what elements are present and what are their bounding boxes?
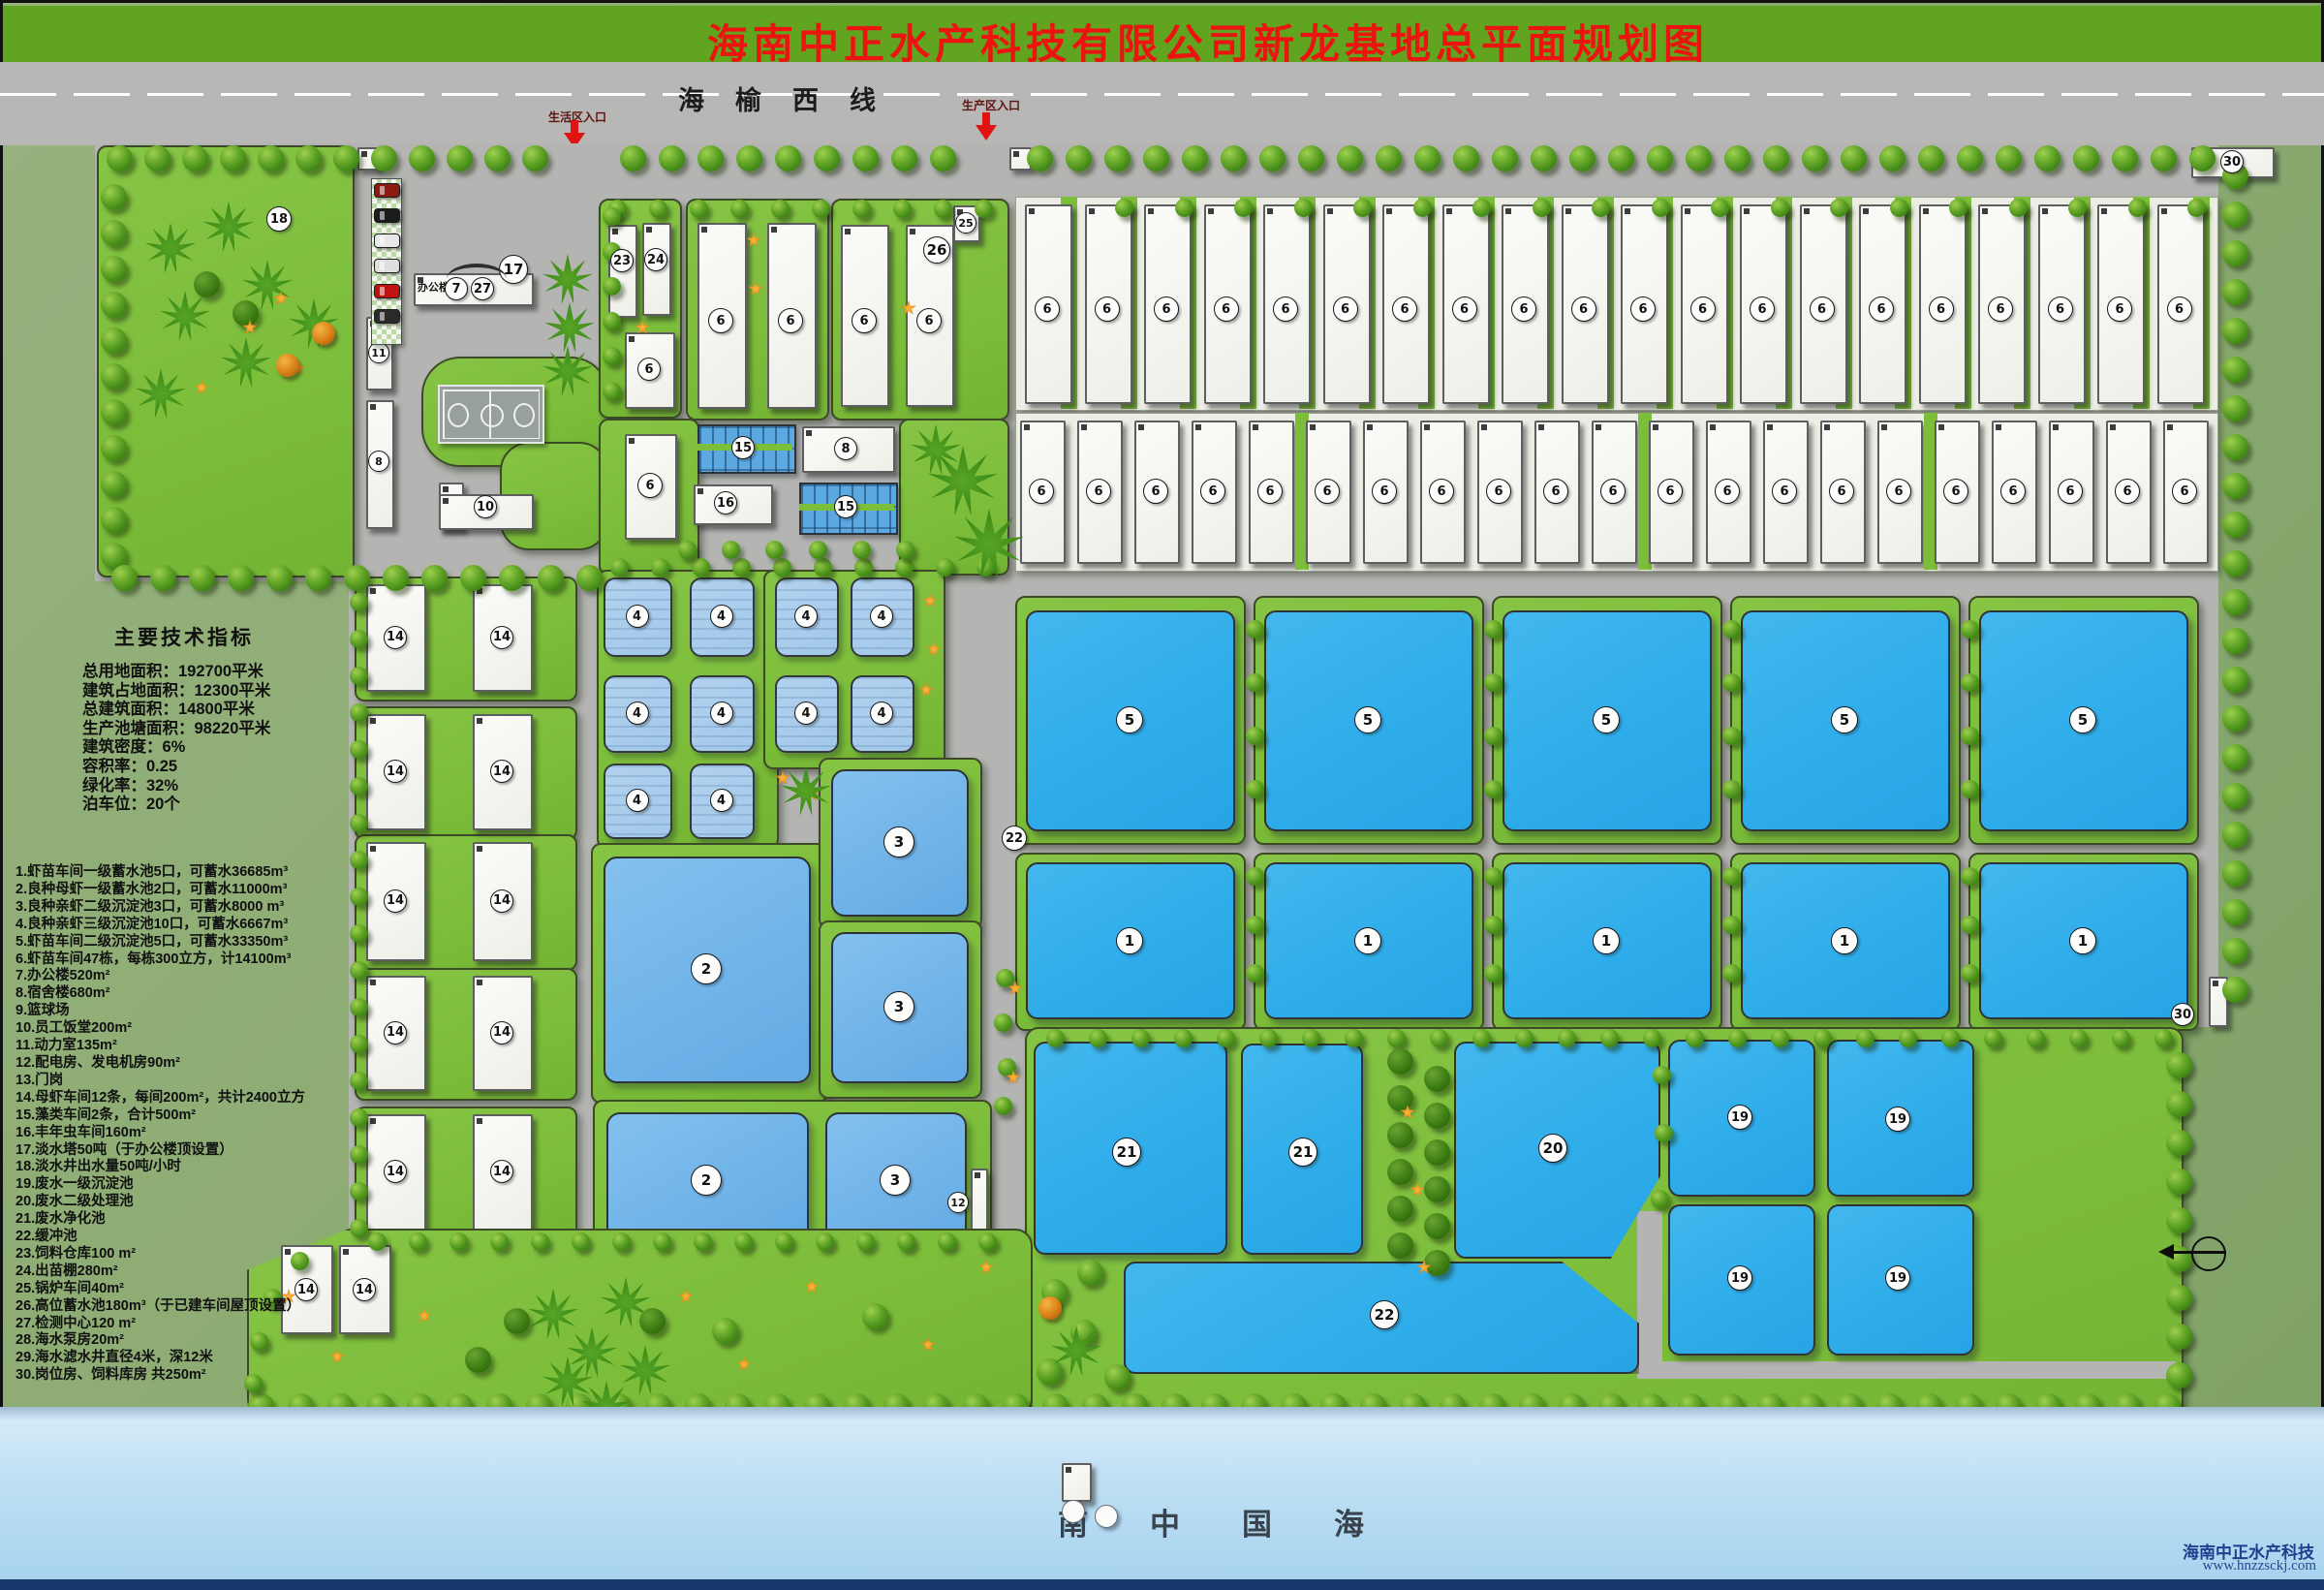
tree-icon [499,565,525,591]
map-label: 23 [610,249,634,272]
tree-icon [1246,916,1264,934]
map-label: 6 [1257,479,1283,504]
tree-icon [896,541,914,559]
orange-tree-icon [276,354,299,377]
map-label: 6 [1690,296,1716,322]
tree-icon [722,541,740,559]
map-label: 21 [1288,1138,1317,1167]
tree-icon [1961,916,1979,934]
tree-icon [1484,620,1503,639]
map-label: 30 [2220,150,2244,173]
tree-icon [891,145,917,171]
legend-notes: 1.虾苗车间一级蓄水池5口，可蓄水36685m³2.良种母虾一级蓄水池2口，可蓄… [15,864,305,1385]
tree-icon [189,565,215,591]
tree-icon [1961,780,1979,798]
tree-icon [1453,145,1479,171]
map-label: 4 [870,605,893,628]
map-label: 4 [710,701,733,725]
north-compass-icon [2158,1232,2228,1273]
map-label: 14 [490,626,513,649]
tree-icon [2068,199,2087,217]
tree-icon [2222,395,2248,421]
tree-icon [522,145,548,171]
legend-note: 17.淡水塔50吨（于办公楼顶设置） [15,1142,305,1160]
tree-icon [2166,1130,2192,1156]
tree-icon [409,145,435,171]
tree-icon [350,1219,368,1237]
tree-icon [649,200,667,218]
map-label: 11 [368,342,389,363]
tree-icon [603,312,621,330]
map-label: 6 [637,358,661,381]
tree-icon [862,1303,888,1329]
map-label: 4 [870,701,893,725]
map-label: 20 [1538,1134,1567,1163]
map-label: 6 [1511,296,1536,322]
tree-icon [1686,1029,1704,1047]
tree-icon [994,1013,1012,1032]
tree-icon [101,292,127,318]
map-label: 6 [637,473,663,498]
legend-note: 20.废水二级处理池 [15,1194,305,1211]
watermark-url: www.hnzzsckj.com [2203,1558,2316,1574]
map-label: 6 [1333,296,1358,322]
tree-icon [449,1232,468,1251]
tree-icon [371,145,397,171]
indicator-line: 总建筑面积：14800平米 [82,701,270,720]
map-label: 4 [794,605,818,628]
legend-title: 主要技术指标 [114,622,366,651]
map-label: 6 [1095,296,1120,322]
map-label: 6 [2115,479,2140,504]
map-label: 16 [714,491,737,514]
tree-icon [1653,1066,1671,1084]
tree-icon [978,1232,997,1251]
tree-icon [1066,145,1092,171]
tree-icon [295,145,322,171]
tree-icon [350,1182,368,1200]
tree-icon [603,207,621,226]
map-label: 19 [1885,1265,1910,1291]
tree-icon [2222,667,2248,693]
tree-icon [1221,145,1247,171]
map-label: 1 [1593,927,1620,954]
tree-icon [1115,199,1133,217]
tree-icon [305,565,331,591]
tree-icon [1484,727,1503,745]
map-label: 6 [1392,296,1417,322]
legend-note: 18.淡水井出水量50吨/小时 [15,1159,305,1176]
map-label: 15 [731,436,755,459]
orange-tree-icon [1038,1296,1062,1320]
tree-icon [612,1232,631,1251]
map-label: 5 [1354,706,1381,733]
parked-car [374,208,400,223]
parked-car [374,284,400,298]
tree-icon [2222,589,2248,615]
tree-icon [1647,145,1673,171]
tree-icon [1104,145,1131,171]
tree-icon [1259,1029,1278,1047]
indicator-line: 总用地面积：192700平米 [82,663,270,682]
tree-icon [2222,279,2248,305]
map-label: 4 [626,789,649,812]
tree-icon [2222,434,2248,460]
legend-note: 19.废水一级沉淀池 [15,1176,305,1194]
map-label: 6 [1750,296,1775,322]
tree-icon [421,565,448,591]
legend-note: 29.海水滤水井直径4米，深12米 [15,1350,305,1367]
map-label: 26 [923,236,950,264]
tree-icon [734,1232,753,1251]
map-label: 4 [626,605,649,628]
tree-icon [2222,860,2248,887]
map-label: 6 [1154,296,1179,322]
tree-icon [368,1232,387,1251]
indicator-line: 建筑占地面积：12300平米 [82,682,270,701]
map-label: 21 [1112,1138,1141,1167]
shore-shadow [0,1407,2324,1420]
tree-icon [1131,1029,1150,1047]
tree-icon [1600,1029,1619,1047]
tree-icon [1961,867,1979,886]
bottom-bar [0,1579,2324,1590]
map-label: 4 [794,701,818,725]
tree-icon [936,558,954,577]
tree-icon [228,565,254,591]
map-label: 6 [2058,479,2083,504]
map-label: 6 [1869,296,1894,322]
map-label: 1 [1354,927,1381,954]
sea-area [0,1407,2324,1590]
legend-note: 13.门岗 [15,1073,305,1090]
tree-icon [1246,964,1264,982]
parked-car [374,183,400,198]
tree-icon [930,145,956,171]
tree-icon [2154,1029,2173,1047]
plan-map: 办公楼6666666666666666666666666666666666666… [0,0,2324,1590]
tree-icon [852,145,879,171]
tree-icon [1771,199,1789,217]
tree-icon [1246,867,1264,886]
tree-icon [1879,145,1906,171]
tree-icon [1722,867,1741,886]
tree-icon [893,200,912,218]
tree-icon [694,1232,712,1251]
tree-icon [490,1232,509,1251]
tree-icon [1424,1103,1450,1129]
tree-icon [1217,1029,1235,1047]
tree-icon [996,969,1014,987]
legend-note: 9.篮球场 [15,1003,305,1020]
tree-icon [2112,1029,2130,1047]
tree-icon [1337,145,1363,171]
tree-icon [1961,620,1979,639]
map-label: 8 [368,451,389,472]
legend-note: 24.出苗棚280m² [15,1263,305,1281]
tree-icon [1918,145,1944,171]
map-label: 3 [883,991,914,1022]
tree-icon [1387,1029,1406,1047]
legend-note: 7.办公楼520m² [15,968,305,985]
indicator-line: 生产池塘面积：98220平米 [82,720,270,739]
tree-icon [603,277,621,296]
tree-icon [934,200,952,218]
tree-icon [101,327,127,354]
tree-icon [1174,1029,1193,1047]
map-label: 14 [384,760,407,783]
tree-icon [2166,1285,2192,1311]
tree-icon [1492,145,1518,171]
map-label: 6 [1929,296,1954,322]
tree-icon [2166,1324,2192,1350]
map-label: 1 [2069,927,2096,954]
tree-icon [350,1145,368,1164]
tree-icon [1592,199,1610,217]
map-label: 6 [1658,479,1683,504]
tree-icon [2222,357,2248,383]
map-label: 6 [2172,479,2197,504]
map-label: 6 [2167,296,2192,322]
map-label: 14 [490,760,513,783]
map-label: 6 [1200,479,1225,504]
map-label: 14 [353,1278,376,1301]
tree-icon [712,1318,738,1344]
map-label: 5 [1593,706,1620,733]
legend-note: 14.母虾车间12条，每间200m²，共计2400立方 [15,1090,305,1107]
tree-icon [2222,550,2248,577]
tree-icon [1387,1122,1413,1148]
tree-icon [1472,1029,1491,1047]
tree-icon [1104,1364,1131,1390]
map-label: 2 [691,953,722,984]
seawater-pump-house [1062,1463,1092,1502]
tree-icon [572,1232,590,1251]
map-label: 14 [384,626,407,649]
tree-icon [1984,1029,2002,1047]
tree-icon [1961,964,1979,982]
tree-icon [182,145,208,171]
tree-icon [350,924,368,943]
tree-icon [333,145,359,171]
map-label: 6 [1214,296,1239,322]
tree-icon [2034,145,2061,171]
tree-icon [1722,673,1741,692]
tree-icon [692,558,710,577]
tree-icon [1722,964,1741,982]
tree-icon [531,1232,549,1251]
tree-icon [775,1232,793,1251]
tree-icon [1484,673,1503,692]
tree-icon [2222,822,2248,848]
tree-icon [232,300,259,327]
tree-icon [2166,1207,2192,1233]
zone-road [1637,1361,2176,1379]
legend-note: 8.宿舍楼680m² [15,985,305,1003]
tree-icon [1841,145,1867,171]
tree-icon [814,558,832,577]
tree-icon [1961,673,1979,692]
tree-icon [1387,1085,1413,1111]
tree-icon [1686,145,1712,171]
tree-icon [350,814,368,832]
tree-icon [1558,1029,1576,1047]
tree-icon [101,399,127,425]
tree-icon [1531,145,1557,171]
tree-icon [1259,145,1286,171]
tree-icon [1608,145,1634,171]
map-label: 22 [1370,1300,1399,1329]
tree-icon [344,565,370,591]
tree-icon [1961,727,1979,745]
tree-icon [2027,1029,2045,1047]
tree-icon [1246,727,1264,745]
tree-icon [659,145,685,171]
map-label: 6 [1988,296,2013,322]
tree-icon [460,565,486,591]
tree-icon [697,145,724,171]
tree-icon [771,200,790,218]
map-label: 6 [1943,479,1968,504]
map-label: 1 [1116,927,1143,954]
tree-icon [765,541,784,559]
tree-icon [1302,1029,1320,1047]
tree-icon [538,565,564,591]
map-label: 6 [1810,296,1835,322]
map-label: 6 [1143,479,1168,504]
tree-icon [101,220,127,246]
tree-icon [2222,202,2248,228]
tree-icon [1890,199,1908,217]
indicator-line: 容积率：0.25 [82,758,270,777]
tree-icon [938,1232,956,1251]
tree-icon [852,200,871,218]
tree-icon [1387,1232,1413,1259]
legend-note: 6.虾苗车间47栋，每栋300立方，计14100m³ [15,951,305,969]
tree-icon [620,145,646,171]
map-label: 6 [1630,296,1656,322]
map-label: 14 [490,1160,513,1183]
map-label: 14 [384,1021,407,1044]
tree-icon [1643,1029,1661,1047]
map-label: 3 [883,826,914,857]
tree-icon [350,1108,368,1127]
tree-icon [1899,1029,1917,1047]
tree-icon [2009,199,2028,217]
parked-car [374,259,400,273]
tree-icon [1353,199,1372,217]
indicator-line: 绿化率：32% [82,777,270,796]
filter-well [1095,1505,1118,1528]
tree-icon [809,541,827,559]
tree-icon [1424,1139,1450,1166]
site-plan-canvas: 海南中正水产科技有限公司新龙基地总平面规划图 海榆西线 生活区入口 生产区入口 … [0,0,2324,1590]
tree-icon [2112,145,2138,171]
map-label: 6 [1273,296,1298,322]
tree-icon [2073,145,2099,171]
map-label: 22 [1002,826,1027,851]
garden-block [97,145,355,577]
tree-icon [856,1232,875,1251]
map-label: 15 [834,495,857,518]
tree-icon [897,1232,915,1251]
tree-icon [895,558,914,577]
parked-car [374,234,400,248]
legend-note: 12.配电房、发电机房90m² [15,1055,305,1073]
tree-icon [2222,783,2248,809]
map-label: 6 [2048,296,2073,322]
tree-icon [854,558,873,577]
tree-icon [1046,1029,1065,1047]
tree-icon [610,558,629,577]
tree-icon [1089,1029,1107,1047]
tree-icon [1655,1124,1673,1142]
tree-icon [775,145,801,171]
tree-icon [1484,867,1503,886]
map-label: 6 [2000,479,2026,504]
tree-icon [383,565,409,591]
tree-icon [1771,1029,1789,1047]
map-label: 12 [947,1192,969,1213]
tree-icon [266,565,293,591]
tree-icon [350,961,368,980]
tree-icon [101,256,127,282]
legend-note: 15.藻类车间2条，合计500m² [15,1107,305,1125]
tree-icon [1856,1029,1875,1047]
tree-icon [1830,199,1848,217]
tree-icon [1246,673,1264,692]
tree-icon [1175,199,1193,217]
tree-icon [1037,1358,1063,1385]
tree-icon [1652,199,1670,217]
tree-icon [1246,780,1264,798]
tree-icon [2166,1362,2192,1388]
legend-note: 4.良种亲虾三级沉淀池10口，可蓄水6667m³ [15,917,305,934]
tree-icon [101,363,127,390]
tree-icon [350,703,368,722]
tree-icon [1996,145,2022,171]
map-label: 25 [955,212,976,234]
tree-icon [2222,899,2248,925]
tree-icon [639,1308,666,1334]
map-label: 6 [1315,479,1340,504]
tree-icon [350,593,368,611]
map-label: 6 [1543,479,1568,504]
map-label: 24 [644,248,667,271]
tree-icon [2187,199,2206,217]
map-label: 19 [1727,1105,1752,1130]
tree-icon [1484,916,1503,934]
tree-icon [1722,780,1741,798]
map-label: 3 [880,1165,911,1196]
tree-icon [111,565,138,591]
legend-note: 2.良种母虾一级蓄水池2口，可蓄水11000m³ [15,882,305,899]
orange-tree-icon [312,322,335,345]
tree-icon [2189,145,2216,171]
tree-icon [1484,780,1503,798]
tree-icon [1515,1029,1534,1047]
tree-icon [1430,1029,1448,1047]
tree-icon [1234,199,1253,217]
tree-icon [350,998,368,1016]
tree-icon [2166,1052,2192,1078]
tree-icon [1763,145,1789,171]
tree-icon [1298,145,1324,171]
parked-car [374,309,400,324]
map-label: 2 [691,1165,722,1196]
map-label: 17 [499,255,528,284]
tree-icon [350,1072,368,1090]
